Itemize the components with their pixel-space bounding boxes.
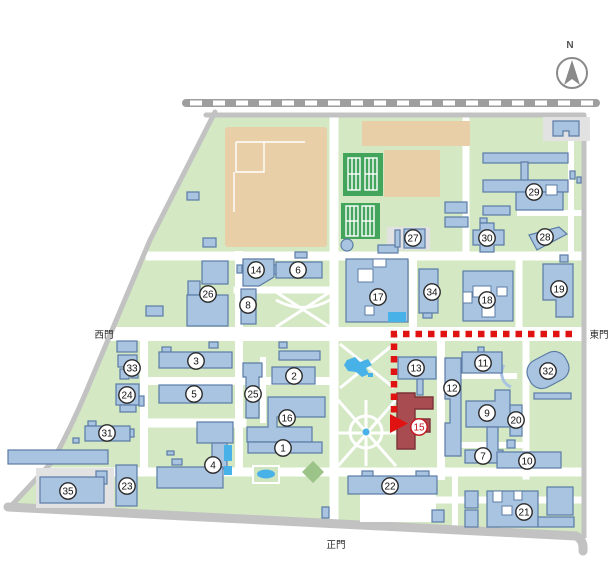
badge-1[interactable]: 1 [275,440,291,456]
small-building[interactable] [203,238,216,247]
badge-9[interactable]: 9 [479,405,495,421]
svg-text:34: 34 [426,288,438,299]
svg-text:11: 11 [478,359,489,370]
badge-25[interactable]: 25 [245,386,261,402]
badge-12[interactable]: 12 [444,380,460,396]
badge-4[interactable]: 4 [205,457,221,473]
field-east-block [384,150,440,197]
tennis-courts [341,153,383,239]
svg-text:21: 21 [518,508,530,519]
badge-18[interactable]: 18 [479,292,495,308]
svg-text:4: 4 [210,461,216,472]
badge-2[interactable]: 2 [286,368,302,384]
badge-5[interactable]: 5 [186,386,202,402]
badge-20[interactable]: 20 [508,412,524,428]
badge-19[interactable]: 19 [551,281,567,297]
building-annex-west[interactable] [8,450,108,464]
small-building[interactable] [480,218,487,223]
badge-32[interactable]: 32 [540,363,556,379]
badge-35[interactable]: 35 [60,483,76,499]
badge-29[interactable]: 29 [526,184,542,200]
small-building[interactable] [560,255,568,262]
compass-n-label: N [566,40,573,51]
badge-3[interactable]: 3 [188,353,204,369]
badge-27[interactable]: 27 [405,230,421,246]
svg-text:9: 9 [484,409,490,420]
pool [224,466,232,475]
badge-24[interactable]: 24 [119,387,135,403]
badge-13[interactable]: 13 [408,360,424,376]
badge-10[interactable]: 10 [519,453,535,469]
small-building[interactable] [237,265,242,273]
svg-text:28: 28 [539,233,551,244]
small-building[interactable] [322,507,329,518]
svg-text:35: 35 [62,487,74,498]
svg-text:22: 22 [384,482,396,493]
small-building[interactable] [445,217,468,227]
badge-28[interactable]: 28 [537,229,553,245]
badge-30[interactable]: 30 [479,230,495,246]
badge-22[interactable]: 22 [382,478,398,494]
campus-map: 1234567891011121314151617181920212223242… [0,0,614,576]
small-building[interactable] [146,306,163,316]
badge-23[interactable]: 23 [119,478,135,494]
svg-text:15: 15 [413,423,425,434]
badge-6[interactable]: 6 [290,262,306,278]
svg-text:33: 33 [126,364,138,375]
small-building[interactable] [570,171,575,179]
svg-text:18: 18 [481,296,493,307]
svg-text:23: 23 [121,482,133,493]
badge-7[interactable]: 7 [475,448,491,464]
badge-15[interactable]: 15 [411,419,427,435]
small-building[interactable] [507,440,515,448]
badge-34[interactable]: 34 [424,284,440,300]
small-building[interactable] [187,192,199,200]
badge-17[interactable]: 17 [370,289,386,305]
svg-text:8: 8 [245,301,251,312]
svg-text:16: 16 [281,414,293,425]
badge-31[interactable]: 31 [99,425,115,441]
building-29[interactable] [483,153,568,215]
badge-26[interactable]: 26 [200,286,216,302]
svg-text:17: 17 [372,293,384,304]
badge-33[interactable]: 33 [124,360,140,376]
svg-text:2: 2 [291,372,297,383]
fountain-plaza [336,400,398,466]
badge-21[interactable]: 21 [516,504,532,520]
compass: N [557,40,587,88]
small-building[interactable] [341,239,353,251]
svg-text:27: 27 [407,234,419,245]
east-gate-label: 東門 [589,329,608,341]
campus-map-svg: 1234567891011121314151617181920212223242… [0,0,614,576]
field-west [225,127,327,247]
svg-text:29: 29 [528,188,540,199]
pond-small [368,373,373,377]
svg-text:6: 6 [295,266,301,277]
small-building[interactable] [445,202,467,213]
small-building[interactable] [73,438,79,443]
field-east-strip [362,121,470,146]
svg-text:5: 5 [191,390,197,401]
svg-text:7: 7 [480,452,486,463]
west-gate-label: 西門 [94,330,113,341]
svg-text:25: 25 [247,390,259,401]
fountain [363,429,370,436]
svg-text:19: 19 [553,285,565,296]
small-building[interactable] [295,252,307,258]
parking-lot [360,494,436,522]
pool [388,312,406,322]
svg-text:30: 30 [481,234,493,245]
svg-text:13: 13 [410,364,422,375]
svg-text:32: 32 [542,367,554,378]
badge-14[interactable]: 14 [248,262,264,278]
badge-8[interactable]: 8 [240,297,256,313]
badge-16[interactable]: 16 [279,410,295,426]
main-gate-label: 正門 [326,540,345,551]
svg-text:12: 12 [446,384,458,395]
ornamental-pool [253,466,279,483]
small-building[interactable] [432,510,444,522]
small-building[interactable] [172,459,182,465]
svg-text:10: 10 [521,457,533,468]
svg-text:24: 24 [121,391,133,402]
svg-text:20: 20 [510,416,522,427]
small-building[interactable] [577,177,581,183]
svg-text:14: 14 [250,266,262,277]
svg-text:26: 26 [202,290,214,301]
pool [224,445,232,461]
svg-text:1: 1 [280,444,286,455]
small-building[interactable] [167,451,174,455]
svg-text:3: 3 [193,357,199,368]
badge-11[interactable]: 11 [475,355,491,371]
svg-text:31: 31 [101,429,113,440]
